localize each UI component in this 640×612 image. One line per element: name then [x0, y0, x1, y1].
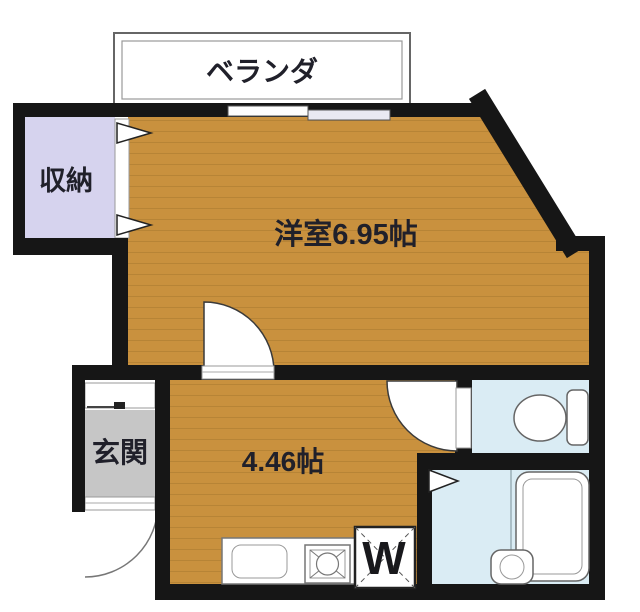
window-pane-left — [228, 106, 308, 116]
washer-box: W — [355, 527, 415, 588]
closet-label: 収納 — [39, 165, 93, 196]
shoe-cabinet-tick — [114, 402, 125, 409]
toilet-tank — [567, 390, 588, 445]
wall-lower-left — [72, 365, 85, 512]
toilet-bowl — [514, 395, 566, 441]
wall-right — [589, 236, 605, 600]
window-pane-right — [308, 110, 390, 120]
balcony-label: ベランダ — [206, 55, 318, 87]
stove-icon — [305, 545, 350, 583]
bath-basin-icon — [491, 550, 533, 584]
wall-closet-left — [13, 103, 25, 255]
kitchen-room-label: 4.46帖 — [242, 446, 325, 477]
wall-western-room-left — [112, 238, 128, 380]
washer-label: W — [362, 532, 406, 584]
toilet-door-leaf — [456, 388, 471, 448]
wall-entrance-right — [155, 380, 170, 600]
wall-toilet-bottom — [417, 453, 605, 470]
bathroom — [429, 470, 589, 584]
wall-closet-bottom — [13, 238, 128, 255]
floor-plan: ベランダ — [0, 0, 640, 612]
balcony: ベランダ — [114, 33, 410, 107]
western-room-label: 洋室6.95帖 — [274, 217, 417, 251]
wall-middle-horizontal — [72, 365, 605, 380]
stove-burner — [317, 553, 339, 575]
entrance-label: 玄関 — [92, 436, 148, 468]
kitchen-counter — [222, 538, 357, 584]
toilet-room — [472, 380, 589, 453]
toilet-icon — [514, 390, 588, 445]
